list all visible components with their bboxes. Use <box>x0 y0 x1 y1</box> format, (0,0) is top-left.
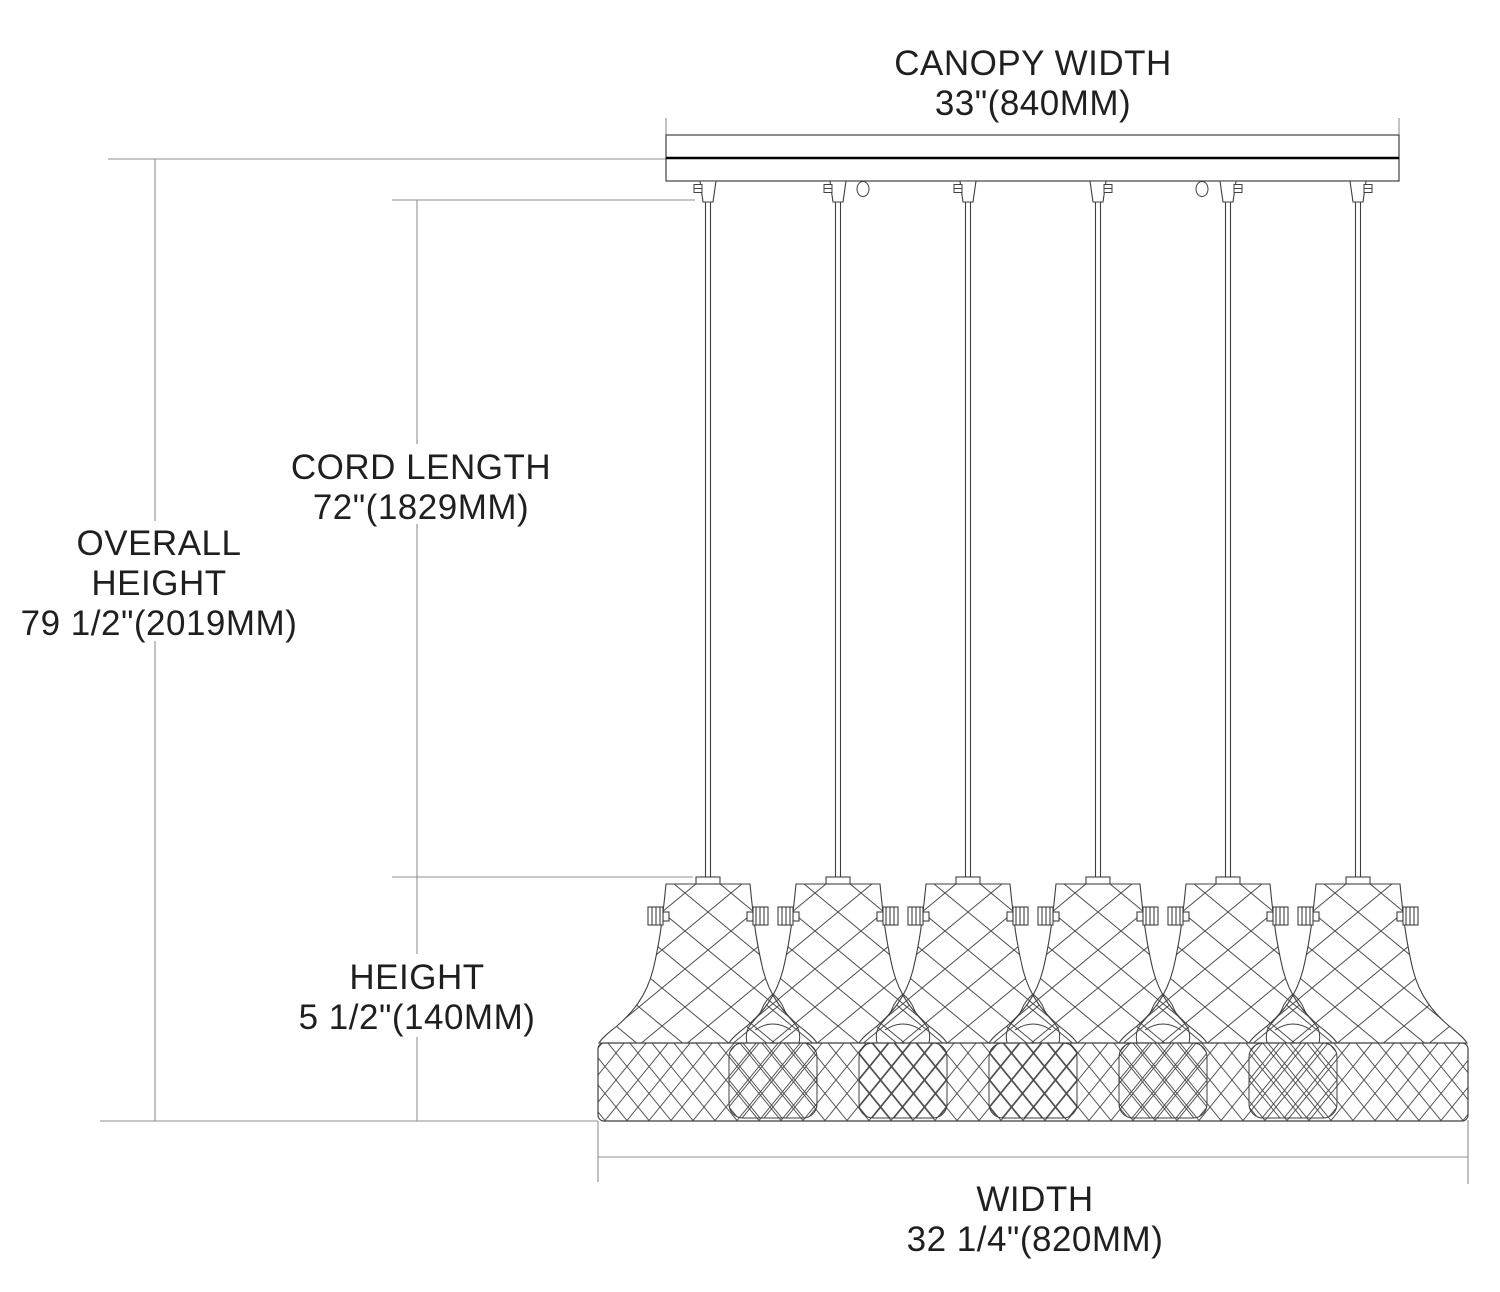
height-value: 5 1/2"(140MM) <box>299 998 536 1038</box>
canopy-width-title: CANOPY WIDTH <box>894 44 1172 84</box>
canopy <box>666 135 1399 197</box>
overall-height-value: 79 1/2"(2019MM) <box>21 604 298 644</box>
overall-height-label: OVERALL HEIGHT 79 1/2"(2019MM) <box>21 524 298 644</box>
canopy-width-label: CANOPY WIDTH 33"(840MM) <box>894 44 1172 124</box>
overall-height-title-1: OVERALL <box>21 524 298 564</box>
grip-screws <box>694 185 1372 193</box>
cord-length-label: CORD LENGTH 72"(1829MM) <box>291 448 551 528</box>
width-value: 32 1/4"(820MM) <box>907 1220 1164 1260</box>
canopy-width-value: 33"(840MM) <box>894 84 1172 124</box>
cord-length-value: 72"(1829MM) <box>291 488 551 528</box>
width-title: WIDTH <box>907 1180 1164 1220</box>
height-title: HEIGHT <box>299 958 536 998</box>
width-label: WIDTH 32 1/4"(820MM) <box>907 1180 1164 1260</box>
height-label: HEIGHT 5 1/2"(140MM) <box>299 958 536 1038</box>
dimension-diagram: CANOPY WIDTH 33"(840MM) CORD LENGTH 72"(… <box>0 0 1500 1292</box>
overall-height-title-2: HEIGHT <box>21 564 298 604</box>
mounting-loop <box>857 182 869 197</box>
mounting-loop <box>1196 182 1208 197</box>
cord-length-title: CORD LENGTH <box>291 448 551 488</box>
fixture-line-drawing <box>0 0 1500 1292</box>
